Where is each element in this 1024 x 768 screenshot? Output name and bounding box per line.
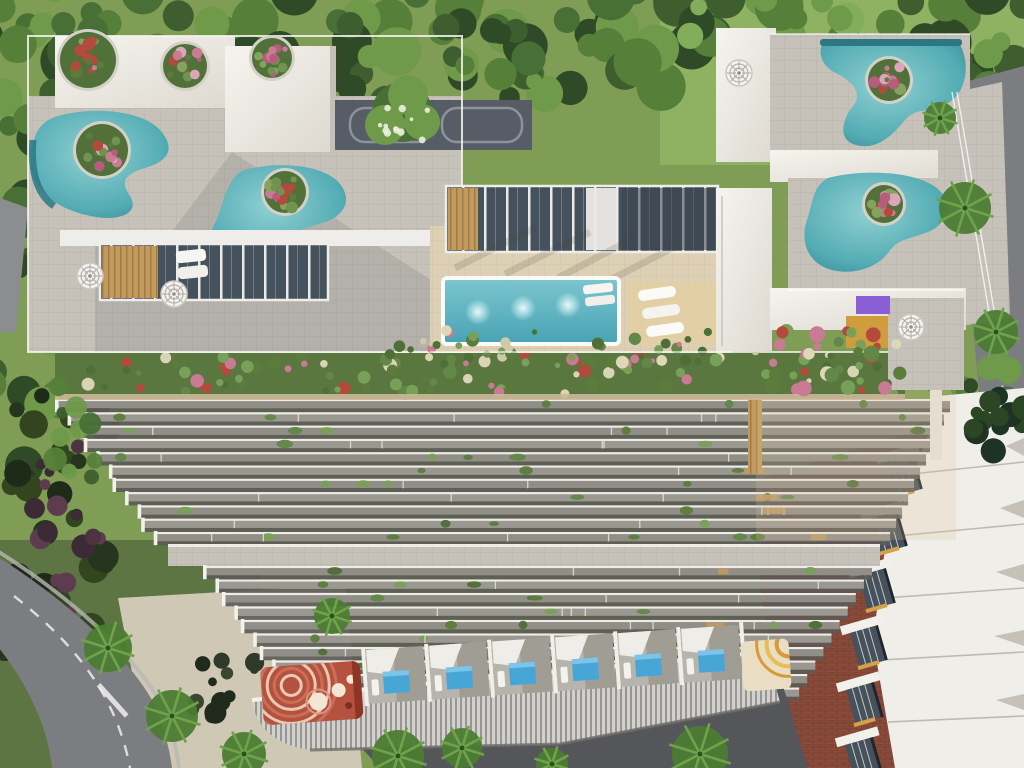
penthouse-glass-dark [622,188,716,250]
garden-plant [160,352,171,363]
garden-plant [136,384,144,392]
flowerbed-plant [704,328,712,336]
balcony-partition [754,621,755,630]
flowerbed-plant [385,349,395,359]
stair-post [88,274,92,278]
garden-plant [121,357,131,367]
garden-plant [828,353,834,359]
garden-plant [676,368,685,377]
garden-plant [320,360,328,368]
balcony-partition [161,453,162,462]
garden-plant [789,372,797,380]
shrub [34,388,49,403]
palm-crown-center [396,754,401,759]
balcony-plant [265,414,277,420]
right-wing-slab-north [716,28,776,162]
garden-plant [190,374,204,388]
garden-plant [361,384,370,393]
balcony-partition [666,427,667,436]
balcony-partition [258,493,259,502]
planter-flowers [289,194,296,201]
planter-flowers [167,71,173,77]
shrub [4,460,31,487]
tree [963,378,978,393]
shrub-flower [800,367,809,376]
shrub-flower [813,343,821,351]
balcony-partition [728,453,729,462]
garden-band-fascia [55,394,905,400]
balcony-plant [370,594,384,601]
tree-blossom [378,123,382,127]
garden-plant [172,361,180,369]
purple-glass-accent [856,296,890,314]
shrub-flower [853,347,862,356]
tree-blossom [399,105,406,112]
balcony-partition [437,608,438,617]
shrub-flower [776,326,788,338]
planter-flowers [878,200,887,209]
planter-flowers [289,184,296,191]
tree-crown [388,75,428,115]
shrub-flower [891,339,901,349]
planter-flowers [71,61,81,71]
flowerbed-plant [394,340,406,352]
balcony-plant [394,581,407,587]
balcony-partition [298,413,299,422]
tree [554,7,580,33]
balcony-end-cap [141,518,145,532]
balcony-plant [628,535,639,540]
balcony-plant [441,520,451,528]
balcony-end-cap [109,465,113,479]
palm-crown-center [550,762,555,767]
garden-plant [427,387,435,395]
flowerbed-plant [463,360,469,366]
flower-planter [249,35,295,81]
flowerbed-plant [698,347,707,356]
planter-flowers [277,188,285,196]
planter-flowers [282,46,287,51]
shrub-flower [796,381,812,397]
planter-flowers [286,202,298,214]
balcony-end-cap [215,579,219,593]
planter-flowers [97,61,104,68]
tree-blossom [397,128,404,135]
balcony-plant [699,520,709,528]
tree-blossom [425,107,430,112]
tree [455,56,474,75]
balcony-plant [115,453,126,461]
palm-crown-center [994,330,999,335]
garden-plant [241,360,254,373]
palm-crown-center [963,206,968,211]
balcony-plant [428,453,437,460]
flowerbed-plant [679,355,691,367]
balcony-plant [732,468,745,473]
tree-blossom [419,137,426,144]
balcony-fascia [218,580,863,582]
balcony-partition [585,608,586,617]
balcony-partition [603,440,604,449]
planter-flowers [94,161,104,171]
shrub-flower [878,381,891,394]
planter-flowers [884,66,889,71]
balcony-partition [571,608,572,617]
flowerbed-plant [420,338,427,345]
balcony-plant [386,534,399,540]
balcony-partition [678,467,679,476]
balcony-end-cap [154,531,158,545]
unit-lounger [623,662,631,678]
garden-plant [586,379,599,392]
balcony-plant [417,468,425,473]
flowerbed-plant [433,341,441,349]
flowerbed-plant [638,353,644,359]
flowerbed-plant [441,325,452,336]
balcony-plant [544,609,558,615]
amenity-deck [168,544,880,566]
planter-flowers [75,45,87,57]
flower-planter [261,168,309,216]
foliage [43,447,67,471]
plunge-pool-unit [487,636,553,698]
balcony-plant [288,427,303,434]
balcony-partition [263,533,264,542]
plunge-pool-unit [613,627,679,689]
shrub [97,557,114,574]
balcony-plant [519,621,528,629]
planter-flowers [111,149,118,156]
balcony-partition [573,567,574,576]
balcony-partition [639,520,640,529]
balcony-plant [318,649,327,656]
shrub-flower [855,362,863,370]
balcony-plant [805,567,816,575]
shrub [85,529,101,545]
palm-crown-center [330,614,335,619]
planter-flowers [878,86,886,94]
flowerbed-plant [630,355,639,364]
planter-flowers [173,51,183,61]
balcony-partition [818,581,819,590]
shrub [40,479,51,490]
tree [526,73,542,89]
balcony-plant [519,466,532,474]
shrub-flower [866,327,881,342]
balcony-partition [602,440,603,449]
balcony-partition [424,635,425,644]
planter-flowers [177,62,187,72]
garden-plant [235,375,243,383]
balcony-plant [177,507,194,514]
garden-plant [335,387,341,393]
balcony-plant [467,581,481,588]
planter-flowers [254,52,263,61]
tree [974,39,1003,68]
warm-terrace-tint [756,390,956,540]
shrub-flower [846,327,856,337]
garden-plant [463,374,473,384]
balcony-end-cap [203,565,207,579]
palm-crown-center [938,116,943,121]
planter-flowers [269,54,279,64]
garden-plant [769,359,777,367]
flowerbed-plant [642,358,653,369]
balcony-plant [680,506,693,514]
tree [0,25,37,63]
unit-lounger [560,667,568,683]
tree [827,5,853,31]
balcony-partition [630,621,631,630]
shrub-flower [856,377,863,384]
planter-flowers [268,46,276,54]
pool-c-infinity-edge [820,39,962,46]
garden-plant [285,365,292,372]
planter-flowers [86,132,93,139]
balcony-plant [113,414,125,422]
garden-plant [82,378,95,391]
garden-plant [578,364,591,377]
balcony-plant [509,454,526,461]
pool-light-3 [555,292,581,318]
balcony-partition [715,413,716,422]
spiral-staircase [898,314,924,340]
shrub-flower [825,368,839,382]
garden-plant [488,383,494,389]
balcony-plant [419,636,428,642]
penthouse-wood-slats [448,188,478,250]
plunge-pool-unit [676,623,742,685]
balcony-plant [529,595,543,600]
flower-planter [160,41,210,91]
balcony-partition [507,533,508,542]
balcony-plant [327,567,342,575]
planter-flowers [867,200,876,209]
planter-flowers [260,61,267,68]
balcony-plant [310,634,319,642]
planter-flowers [869,76,881,88]
balcony-plant [277,440,293,448]
balcony-plant [320,427,334,434]
balcony-partition [608,533,609,542]
garden-plant [387,365,398,376]
shrub-flower [803,348,815,360]
shrub-flower [841,380,855,394]
shrub-flower [774,339,786,351]
balcony-plant [725,400,734,409]
garden-plant [101,384,107,390]
tree [373,27,421,75]
spiral-staircase [726,60,752,86]
tree [480,18,505,43]
balcony-partition [381,440,382,449]
rock [208,677,217,686]
amenity-deck-fascia [168,544,880,547]
balcony-end-cap [112,478,116,492]
tree [358,45,381,68]
balcony-partition [611,427,612,436]
balcony-fascia [225,593,856,595]
planter-flowers [92,65,97,70]
tree [484,58,516,90]
garden-plant [659,379,673,393]
plunge-pool-unit [361,644,427,706]
shrub [71,509,83,521]
balcony-end-cap [253,633,257,647]
garden-plant [858,386,865,393]
balcony-plant [384,480,392,487]
flower-planter [865,56,913,104]
bush [981,438,1006,463]
rock [211,692,230,711]
tree-blossom [410,117,414,121]
flowerbed-plant [522,358,530,366]
tree-blossom [383,124,388,129]
shrub-flower [893,367,906,380]
tree [163,0,194,31]
balcony-plant [683,481,692,487]
balcony-plant [570,494,584,500]
balcony-plant [489,521,499,526]
shrub [24,498,45,519]
garden-plant [269,356,281,368]
balcony-plant [621,427,630,435]
balcony-plant [318,581,329,588]
flowerbed-plant [629,333,641,345]
balcony-partition [663,493,664,502]
unit-lounger [434,675,442,691]
shrub [37,522,57,542]
tree [995,357,1022,384]
balcony-plant [770,621,777,628]
flower-planter [73,121,131,179]
balcony-plant [733,533,747,540]
shrub [47,495,68,516]
flowerbed-plant [455,342,462,349]
flower-planter [862,182,906,226]
balcony-partition [738,594,739,603]
balcony-partition [152,427,153,436]
planter-flowers [190,70,200,80]
pool-light-2 [510,295,536,321]
tree [51,12,75,36]
shrub [56,573,76,593]
palm-crown-center [170,714,175,719]
tree [343,19,359,35]
flowerbed-plant [656,355,667,366]
penthouse-curtain [586,188,616,250]
plunge-pool-unit [424,640,490,702]
balcony-end-cap [241,619,245,633]
balcony-plant [637,609,651,614]
flowerbed-plant [498,347,505,354]
planter-flowers [185,54,191,60]
balcony-partition [350,440,351,449]
balcony-plant [445,621,457,629]
balcony-plant [123,428,137,433]
balcony-partition [234,520,235,529]
balcony-partition [451,493,452,502]
flowerbed-plant [532,329,537,334]
tree [511,41,545,75]
balcony-fascia [206,566,872,568]
penthouse-wood-interior [102,246,158,298]
balcony-partition [495,581,496,590]
foliage [84,470,99,485]
balcony-partition [562,608,563,617]
flower-planter [57,29,119,91]
scene-canvas [0,0,1024,768]
spiral-staircase [77,263,103,289]
shrub-flower [765,378,781,394]
tree [677,23,703,49]
flowerbed-plant [685,336,692,343]
balcony-end-cap [138,504,142,518]
flowerbed-plant [468,331,478,341]
stair-post [172,292,176,296]
garden-plant [218,352,229,363]
balcony-plant [463,455,472,460]
bush [964,419,983,438]
garden-plant [555,363,560,368]
balcony-shadow-gap [206,575,872,579]
flowerbed-plant [710,354,723,367]
planter-flowers [112,137,121,146]
shrub [9,402,24,417]
palm-crown-center [106,646,111,651]
tree [786,8,808,30]
balcony-plant [356,480,370,487]
planter-flowers [894,62,904,72]
palm-crown-center [698,752,703,757]
spiral-staircase [161,281,187,307]
flowerbed-plant [447,355,456,364]
stair-post [737,71,741,75]
garden-plant [390,378,402,390]
shrub-flower [834,337,844,347]
garden-plant [86,365,95,374]
garden-plant [301,361,307,367]
garden-plant [136,370,142,376]
balcony-plant [320,481,331,488]
right-wing-slab-mid [716,188,772,352]
balcony-partition [652,621,653,630]
foliage [87,453,103,469]
garden-plant [179,367,191,379]
planter-flowers [92,140,103,151]
balcony-plant [542,400,551,408]
planter-flowers [271,177,281,187]
planter-flowers [888,79,899,90]
shrub-flower [863,346,879,362]
palm-crown-center [460,746,465,751]
flowerbed-plant [677,342,682,347]
plunge-pool-unit [550,631,616,693]
bush [990,407,1009,426]
planter-flowers [267,67,275,75]
planter-flowers [83,153,92,162]
garden-plant [429,378,437,386]
shrub [20,410,48,438]
tree [578,34,601,57]
balcony-partition [701,413,702,422]
foliage [51,428,70,447]
foliage [49,377,68,396]
shrub-flower [872,362,882,372]
planter-flowers [278,63,288,73]
garden-plant [123,366,131,374]
rock [195,656,210,671]
